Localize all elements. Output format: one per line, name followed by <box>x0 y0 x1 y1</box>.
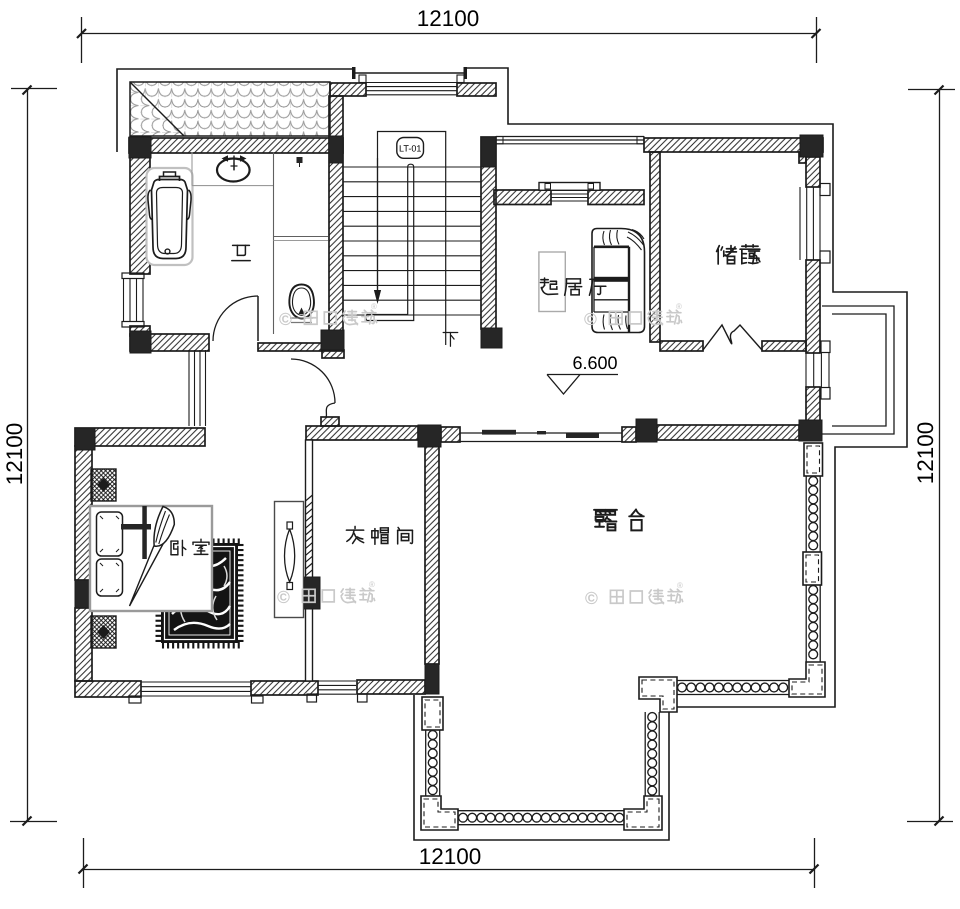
svg-text:12100: 12100 <box>417 6 480 31</box>
svg-text:6.600: 6.600 <box>572 353 617 373</box>
svg-text:©: © <box>277 587 290 607</box>
svg-text:©: © <box>585 588 598 608</box>
svg-text:®: ® <box>371 302 377 311</box>
svg-text:®: ® <box>677 581 683 590</box>
svg-text:12100: 12100 <box>2 423 27 486</box>
svg-text:©: © <box>279 309 292 329</box>
svg-text:®: ® <box>676 302 682 311</box>
svg-text:©: © <box>584 309 597 329</box>
svg-text:®: ® <box>369 580 375 589</box>
svg-text:12100: 12100 <box>419 844 482 869</box>
svg-text:LT-01: LT-01 <box>399 144 421 154</box>
svg-text:12100: 12100 <box>913 422 938 485</box>
